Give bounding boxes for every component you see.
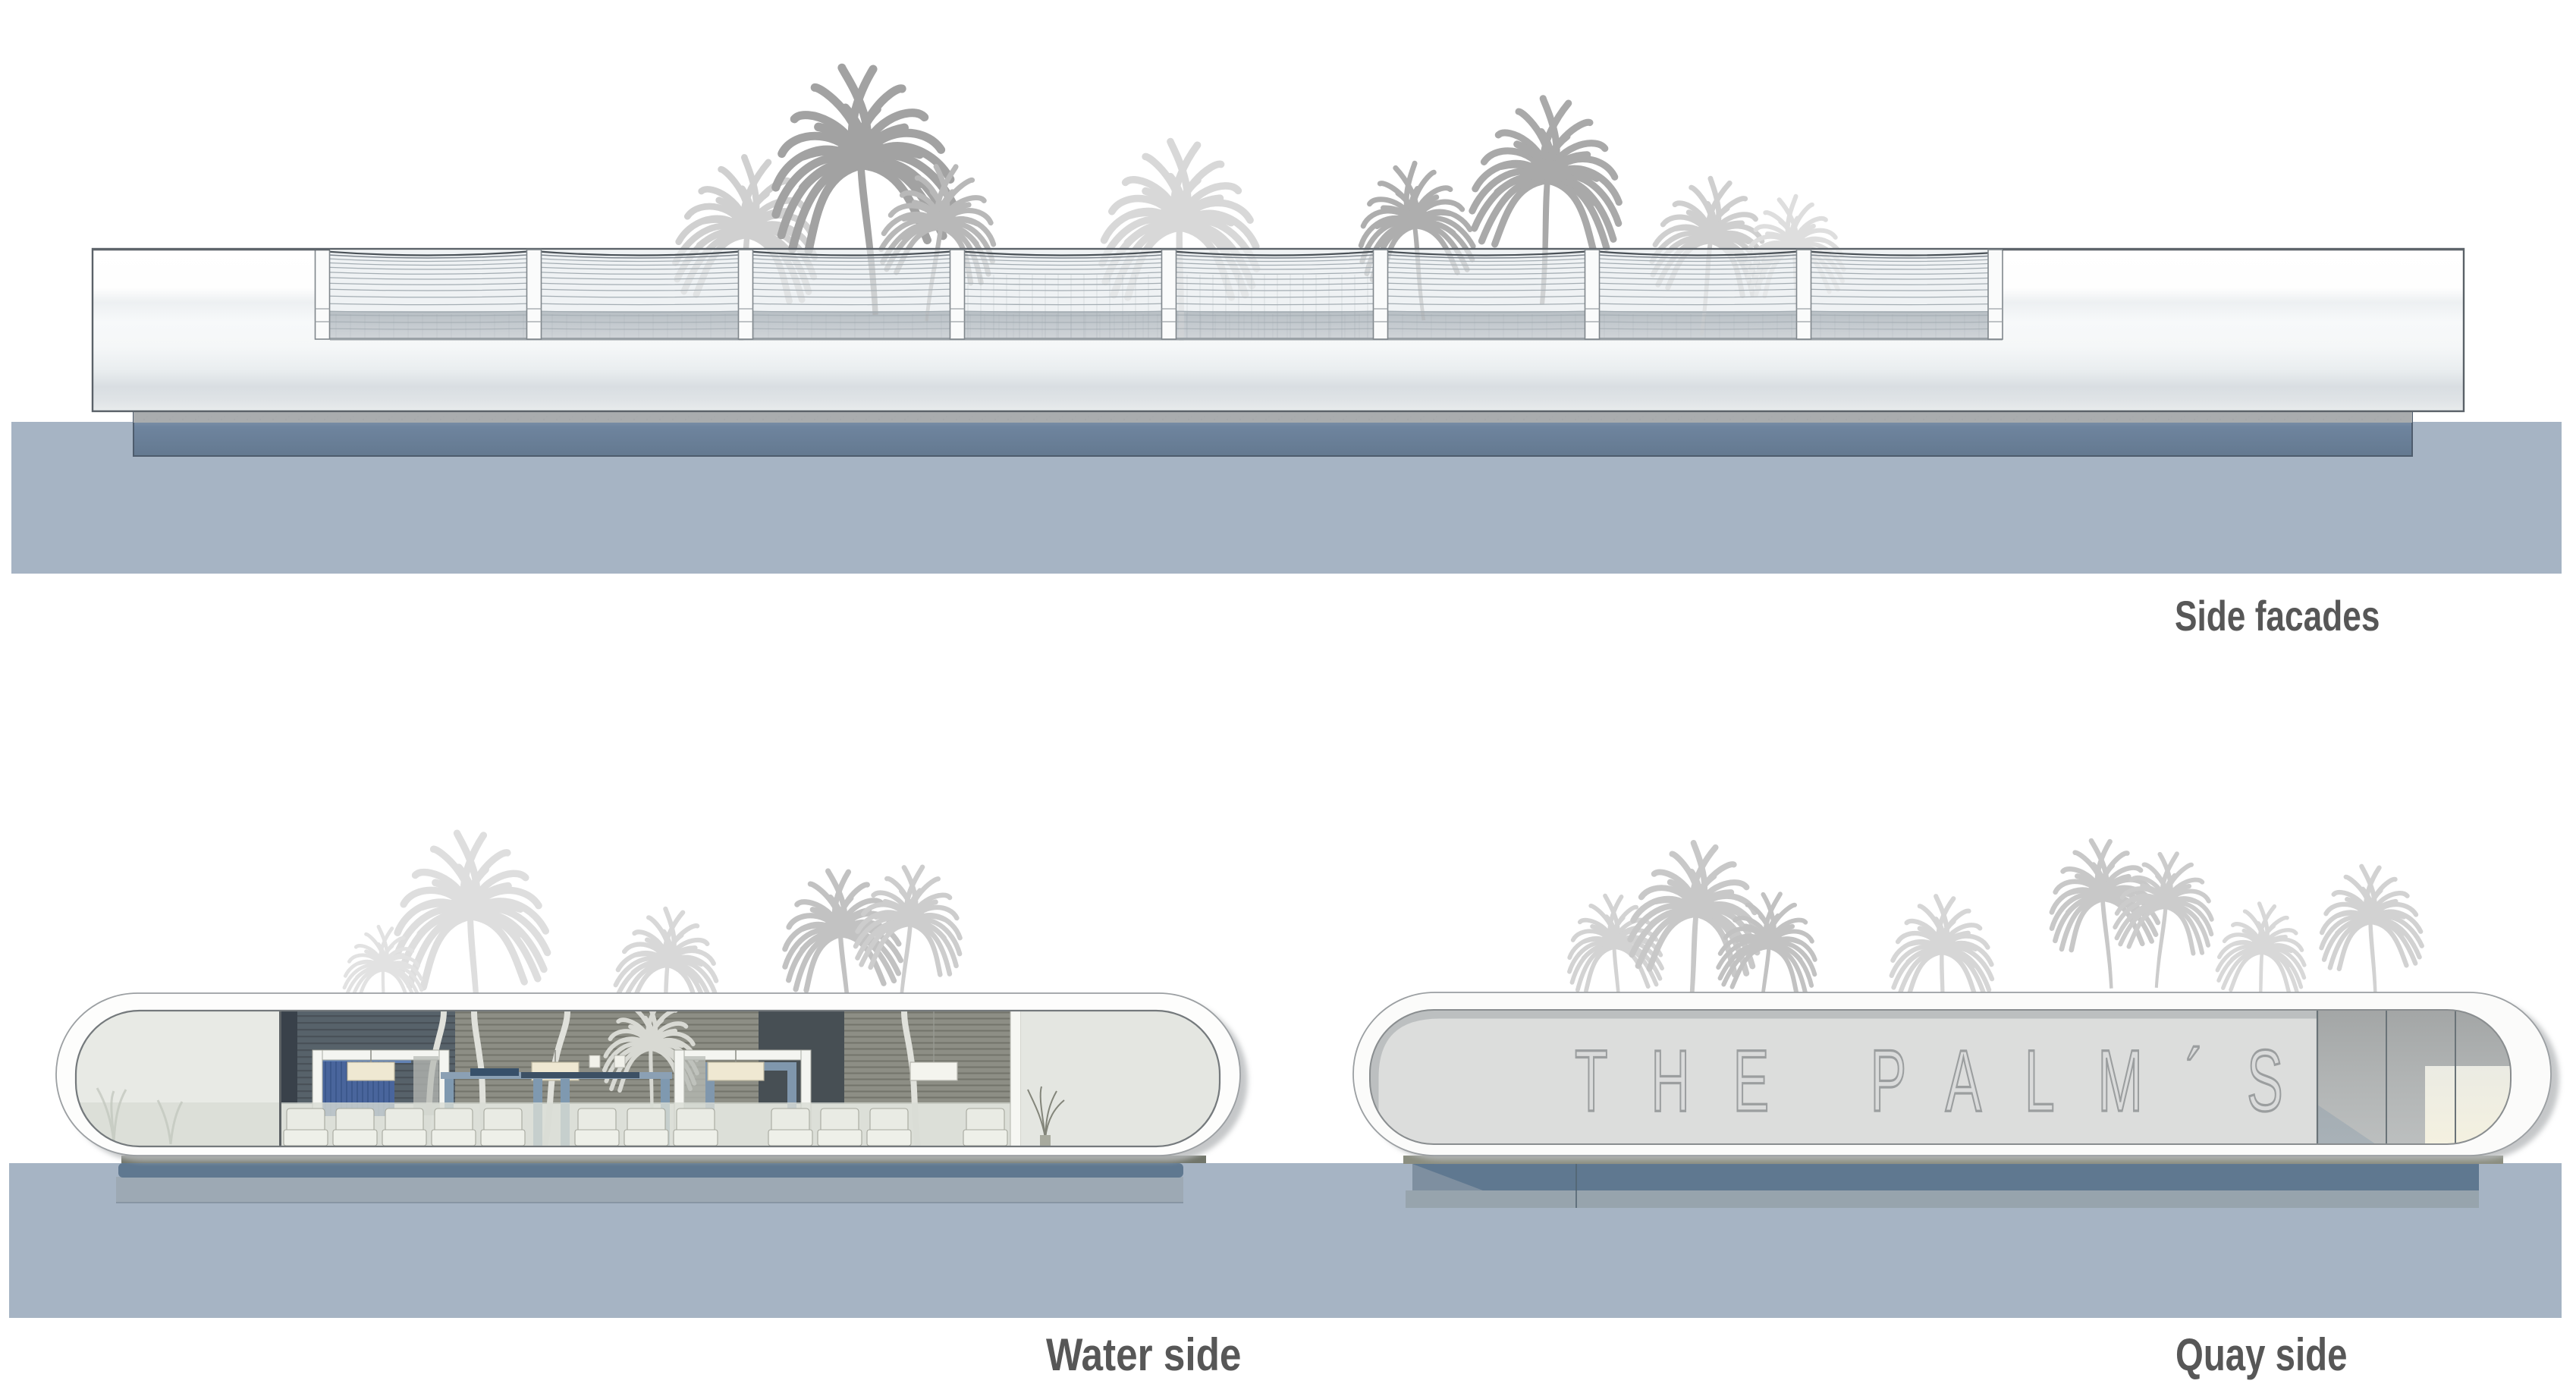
svg-text:Quay side: Quay side: [2175, 1330, 2347, 1381]
svg-text:Side facades: Side facades: [2175, 592, 2380, 640]
svg-text:Water side: Water side: [1046, 1329, 1241, 1380]
